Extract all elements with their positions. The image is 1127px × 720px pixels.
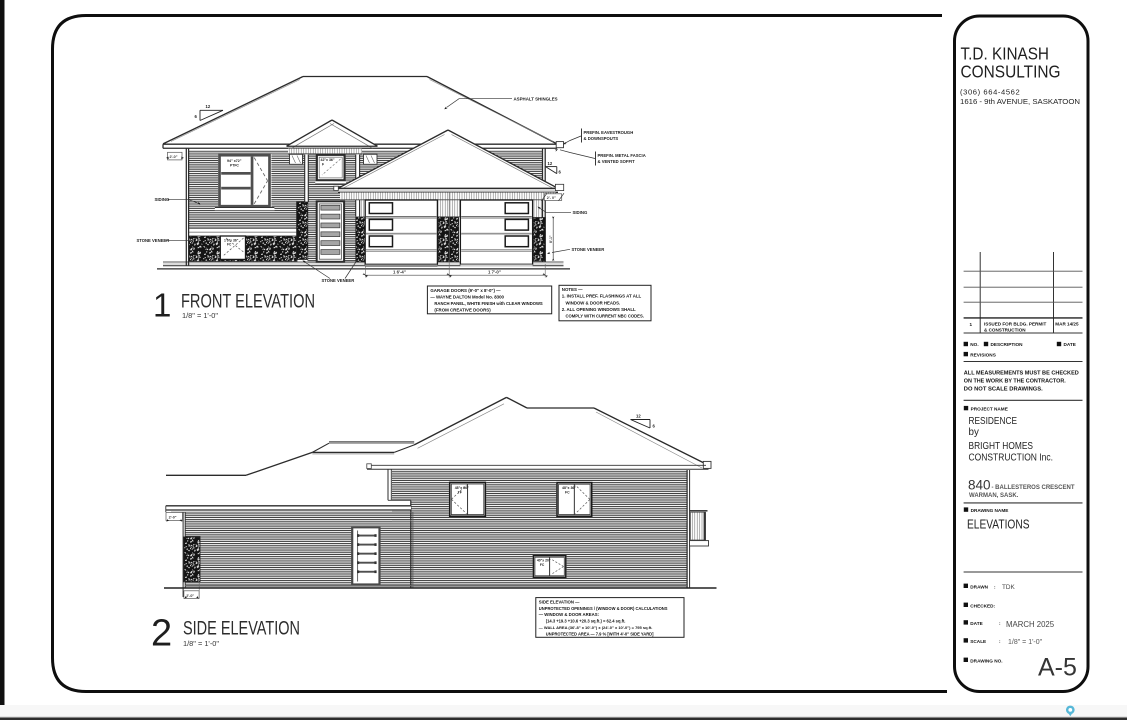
svg-text:12: 12 xyxy=(206,104,211,109)
svg-text:ISSUED FOR BLDG. PERMIT: ISSUED FOR BLDG. PERMIT xyxy=(984,321,1046,326)
svg-text:SIDE ELEVATION: SIDE ELEVATION xyxy=(183,618,300,640)
svg-text:DRAWN: DRAWN xyxy=(970,584,988,589)
svg-text:SIDING: SIDING xyxy=(573,210,588,215)
svg-text:1616 - 9th AVENUE, SASKATOON: 1616 - 9th AVENUE, SASKATOON xyxy=(960,97,1080,106)
svg-text:T.D. KINASH: T.D. KINASH xyxy=(961,44,1050,64)
svg-text:2: 2 xyxy=(151,612,172,654)
svg-text:MARCH 2025: MARCH 2025 xyxy=(1006,620,1055,629)
svg-text:2'-0": 2'-0" xyxy=(186,594,194,598)
svg-text:PREFIN. EAVESTROUGH: PREFIN. EAVESTROUGH xyxy=(584,130,634,135)
svg-text:A-5: A-5 xyxy=(1038,654,1077,682)
svg-text:1/8" = 1'-0": 1/8" = 1'-0" xyxy=(183,639,219,648)
svg-text:COMPLY WITH CURRENT NBC CODES.: COMPLY WITH CURRENT NBC CODES. xyxy=(566,314,644,319)
svg-text:REVISIONS: REVISIONS xyxy=(970,352,996,357)
svg-text:SCALE: SCALE xyxy=(970,639,986,644)
svg-text:48"x 36": 48"x 36" xyxy=(455,486,469,490)
svg-text:1. INSTALL PREF. FLASHINGS AT: 1. INSTALL PREF. FLASHINGS AT ALL xyxy=(562,294,642,299)
svg-text:TDK: TDK xyxy=(1002,584,1016,591)
svg-text:& VENTED SOFFIT: & VENTED SOFFIT xyxy=(598,159,636,164)
svg-text:F: F xyxy=(322,162,324,166)
svg-text:PTFC: PTFC xyxy=(230,164,239,168)
svg-text:94" x72": 94" x72" xyxy=(227,159,242,163)
svg-text:12: 12 xyxy=(548,161,553,166)
svg-text:1: 1 xyxy=(153,287,171,324)
svg-text:FRONT ELEVATION: FRONT ELEVATION xyxy=(181,291,315,313)
svg-text:— WAYNE DALTON Model No. 8300: — WAYNE DALTON Model No. 8300 xyxy=(430,294,504,299)
svg-text:12: 12 xyxy=(636,414,641,419)
svg-text:DATE: DATE xyxy=(970,621,982,626)
svg-text:DRAWING NO.: DRAWING NO. xyxy=(970,658,1002,663)
svg-text:ASPHALT SHINGLES: ASPHALT SHINGLES xyxy=(514,96,558,101)
svg-text:UNPROTECTED OPENINGS / (WINDOW: UNPROTECTED OPENINGS / (WINDOW & DOOR) C… xyxy=(539,606,668,611)
svg-text:1/8" = 1'-0": 1/8" = 1'-0" xyxy=(182,311,218,320)
svg-text:FC: FC xyxy=(540,563,545,567)
svg-text:DATE: DATE xyxy=(1064,342,1076,347)
svg-text:& CONSTRUCTION: & CONSTRUCTION xyxy=(984,328,1026,333)
svg-text:WARMAN, SASK.: WARMAN, SASK. xyxy=(969,493,1019,499)
svg-text:NO.: NO. xyxy=(970,342,978,347)
svg-text:NOTES —: NOTES — xyxy=(562,287,583,292)
svg-text:& DOWNSPOUTS: & DOWNSPOUTS xyxy=(584,136,619,141)
svg-text:TF: TF xyxy=(458,490,462,494)
svg-text:SIDE ELEVATION —: SIDE ELEVATION — xyxy=(539,599,580,604)
svg-text:CONSTRUCTION Inc.: CONSTRUCTION Inc. xyxy=(969,453,1054,464)
svg-text:1 6'-4": 1 6'-4" xyxy=(393,269,406,274)
svg-text:DESCRIPTION: DESCRIPTION xyxy=(991,342,1024,347)
svg-text:- BALLESTEROS CRESCENT: - BALLESTEROS CRESCENT xyxy=(992,485,1075,491)
svg-text:(FROM CREATIVE DOORS): (FROM CREATIVE DOORS) xyxy=(434,308,491,313)
svg-text:2'-0": 2'-0" xyxy=(169,516,177,520)
svg-text:FC: FC xyxy=(565,491,570,495)
svg-text:ELEVATIONS: ELEVATIONS xyxy=(967,517,1030,531)
svg-text:(14.3 +19.3 +10.6 +20.3 sq.ft.: (14.3 +19.3 +10.6 +20.3 sq.ft.) = 62.4 s… xyxy=(546,619,626,624)
svg-text:(306) 664-4562: (306) 664-4562 xyxy=(960,88,1020,97)
svg-text:ALL MEASUREMENTS MUST BE CHECK: ALL MEASUREMENTS MUST BE CHECKED xyxy=(964,371,1079,377)
svg-text:CONSULTING: CONSULTING xyxy=(961,62,1061,82)
svg-text:— WINDOW & DOOR AREAS:: — WINDOW & DOOR AREAS: xyxy=(539,612,600,617)
svg-text:DO NOT SCALE DRAWINGS.: DO NOT SCALE DRAWINGS. xyxy=(964,386,1043,392)
svg-text:2'- 0": 2'- 0" xyxy=(547,196,556,200)
svg-text:RANCH PANEL, WHITE FINISH with: RANCH PANEL, WHITE FINISH with CLEAR WIN… xyxy=(434,301,543,306)
svg-text:2'-0": 2'-0" xyxy=(170,155,178,159)
svg-text:GARAGE DOORS (9'-0" x 8'-0") —: GARAGE DOORS (9'-0" x 8'-0") — xyxy=(430,288,501,293)
svg-text:DRAWING NAME: DRAWING NAME xyxy=(971,508,1009,513)
svg-text:1/8" = 1'-0": 1/8" = 1'-0" xyxy=(1008,639,1043,646)
svg-text:STONE VENEER: STONE VENEER xyxy=(322,278,355,283)
svg-text:1 7'-0": 1 7'-0" xyxy=(488,269,501,274)
svg-text:1: 1 xyxy=(970,322,973,327)
svg-text:ON THE WORK BY THE CONTRACTOR.: ON THE WORK BY THE CONTRACTOR. xyxy=(964,379,1066,385)
svg-text:PROJECT NAME: PROJECT NAME xyxy=(971,407,1008,412)
svg-text:— WALL AREA (36'-8" x 10'-0"): — WALL AREA (36'-8" x 10'-0") x (24'-0" … xyxy=(539,625,653,630)
svg-text:BRIGHT HOMES: BRIGHT HOMES xyxy=(969,441,1034,452)
svg-text:UNPROTECTED AREA — 7.9 % [WITH: UNPROTECTED AREA — 7.9 % [WITH 4'-0" SID… xyxy=(546,631,654,636)
svg-text:840: 840 xyxy=(968,478,991,493)
svg-text:by: by xyxy=(969,427,979,438)
svg-text:2. ALL OPENING WINDOWS SHALL: 2. ALL OPENING WINDOWS SHALL xyxy=(562,307,636,312)
svg-text:PREFIN. METAL FASCIA: PREFIN. METAL FASCIA xyxy=(598,153,646,158)
svg-text:STONE VENEER: STONE VENEER xyxy=(572,247,605,252)
svg-text:48"x 36": 48"x 36" xyxy=(562,486,576,490)
svg-text:MAR 14/25: MAR 14/25 xyxy=(1055,321,1079,326)
svg-text:CHECKED:: CHECKED: xyxy=(970,603,995,608)
svg-text:RESIDENCE: RESIDENCE xyxy=(969,416,1018,427)
svg-text:8'-1": 8'-1" xyxy=(549,235,553,243)
svg-text:40"x 20": 40"x 20" xyxy=(537,559,551,563)
svg-text:WINDOW & DOOR HEADS.: WINDOW & DOOR HEADS. xyxy=(566,300,621,305)
svg-text:FC: FC xyxy=(227,243,232,247)
